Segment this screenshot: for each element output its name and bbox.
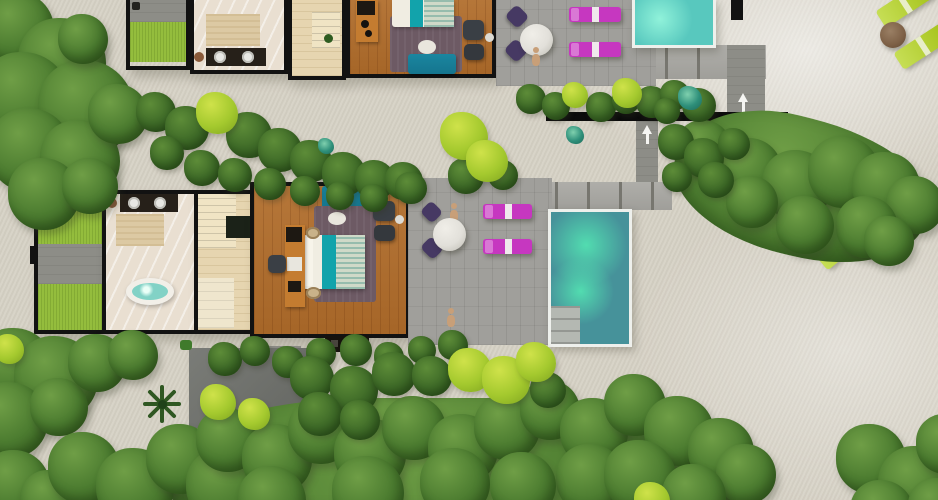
lounger-headpad — [571, 43, 579, 56]
lower-villa-bathroom — [102, 190, 198, 334]
court-grass — [38, 284, 102, 330]
bush — [218, 158, 252, 192]
rattan-stool — [306, 227, 320, 239]
upper-villa-bedroom — [346, 0, 496, 78]
tree — [864, 216, 914, 266]
bath-rug — [116, 214, 164, 246]
lounger-towel — [592, 7, 599, 22]
bush — [395, 172, 427, 204]
bush — [254, 168, 286, 200]
armchair — [463, 20, 484, 40]
side-table — [485, 33, 494, 42]
sun-lounger-magenta — [483, 204, 532, 219]
person-head — [533, 47, 539, 53]
storage-unit — [226, 216, 250, 238]
agave — [318, 138, 334, 154]
lime — [200, 384, 236, 420]
shower-drain — [132, 2, 140, 10]
upper-pool — [632, 0, 716, 48]
upper-villa-shower-court — [126, 0, 190, 70]
court-grass — [130, 22, 186, 62]
upper-pool-water — [635, 0, 713, 45]
lounger-gap — [915, 36, 931, 56]
double-vanity — [120, 194, 178, 212]
soaking-tub — [126, 278, 174, 305]
desk-item — [288, 281, 301, 292]
bush — [654, 98, 680, 124]
palm-crown — [158, 400, 167, 409]
bush — [290, 176, 320, 206]
bush — [150, 136, 184, 170]
double-vanity — [206, 48, 266, 66]
daybed-sofa — [408, 54, 456, 74]
lounger-gap — [897, 0, 913, 14]
round-rug — [328, 212, 346, 225]
lounger-towel — [505, 204, 512, 219]
agave — [566, 126, 584, 144]
terrace-table — [433, 218, 466, 251]
bush — [340, 334, 372, 366]
bush — [662, 162, 692, 192]
lower-pool — [548, 209, 632, 347]
direction-arrow-upper — [736, 93, 750, 112]
round-rug — [418, 40, 436, 54]
tree — [108, 330, 158, 380]
person-head — [451, 203, 457, 209]
bed-quilt — [336, 235, 365, 289]
vanity-stool — [194, 52, 204, 62]
beach-side-table — [880, 22, 906, 48]
arrow-head-icon — [738, 93, 748, 102]
person-figure — [530, 47, 542, 69]
tree — [62, 158, 118, 214]
bush — [298, 392, 342, 436]
lime — [516, 342, 556, 382]
bed — [303, 235, 365, 289]
ottoman — [464, 44, 484, 60]
bush — [698, 162, 734, 198]
desk-item — [361, 20, 369, 28]
bush — [718, 128, 750, 160]
court-wall-notch — [30, 246, 36, 264]
side-table — [395, 215, 404, 224]
sink-basin — [154, 197, 166, 209]
lime — [612, 78, 642, 108]
arrow-head-icon — [642, 125, 652, 134]
tree — [776, 196, 834, 254]
pouf-seat — [505, 4, 530, 29]
rattan-stool — [306, 287, 321, 299]
ottoman — [374, 225, 395, 241]
sun-lounger-magenta — [569, 7, 621, 22]
person-body — [532, 54, 540, 66]
sink-basin — [214, 51, 226, 63]
lower-villa-hall — [194, 190, 256, 334]
direction-arrow-lower — [640, 125, 654, 144]
sink-basin — [128, 197, 140, 209]
lime — [466, 140, 508, 182]
lower-pool-water — [551, 212, 629, 344]
desk-chair — [268, 255, 286, 273]
bed-teal-runner — [410, 0, 423, 27]
lime — [562, 82, 588, 108]
bush — [360, 184, 388, 212]
sun-lounger-magenta — [483, 239, 532, 254]
palm-tree — [142, 384, 182, 424]
site-plan-render — [0, 0, 938, 500]
court-walkway — [38, 244, 102, 284]
writing-desk — [285, 225, 305, 307]
lounger-towel — [505, 239, 512, 254]
lounger-towel — [592, 42, 599, 57]
agave — [678, 86, 702, 110]
bush — [184, 150, 220, 186]
lower-terrace — [408, 178, 552, 345]
desk-item — [287, 257, 302, 271]
lounger-headpad — [571, 8, 579, 21]
pool-steps — [551, 306, 580, 344]
arrow-stem — [646, 134, 649, 144]
desk-top-tray — [286, 227, 302, 242]
bed-quilt — [424, 0, 454, 27]
bed — [392, 0, 454, 27]
desk-top-tray — [357, 1, 375, 15]
person-figure — [445, 308, 457, 328]
bush — [340, 400, 380, 440]
lime — [238, 398, 270, 430]
tub-water — [132, 283, 168, 300]
potted-plant — [324, 34, 333, 43]
bush — [326, 182, 354, 210]
bush — [372, 352, 416, 396]
tree — [726, 176, 778, 228]
writing-desk — [356, 0, 378, 42]
upper-villa-hall — [288, 0, 346, 80]
garden-object — [180, 340, 192, 350]
bush — [208, 342, 242, 376]
person-body — [447, 315, 455, 327]
bush — [412, 356, 452, 396]
upper-villa-bathroom — [190, 0, 288, 74]
bath-rug — [206, 14, 260, 46]
tree — [58, 14, 108, 64]
sun-lounger-magenta — [569, 42, 621, 57]
lounger-headpad — [485, 240, 493, 253]
window-bench — [198, 278, 234, 328]
person-head — [448, 308, 454, 314]
wall-stub-top-right — [731, 0, 743, 20]
bed-teal-runner — [322, 235, 336, 289]
lounger-headpad — [485, 205, 493, 218]
lime — [196, 92, 238, 134]
bush — [240, 336, 270, 366]
sink-basin — [242, 51, 254, 63]
desk-item — [365, 30, 372, 37]
